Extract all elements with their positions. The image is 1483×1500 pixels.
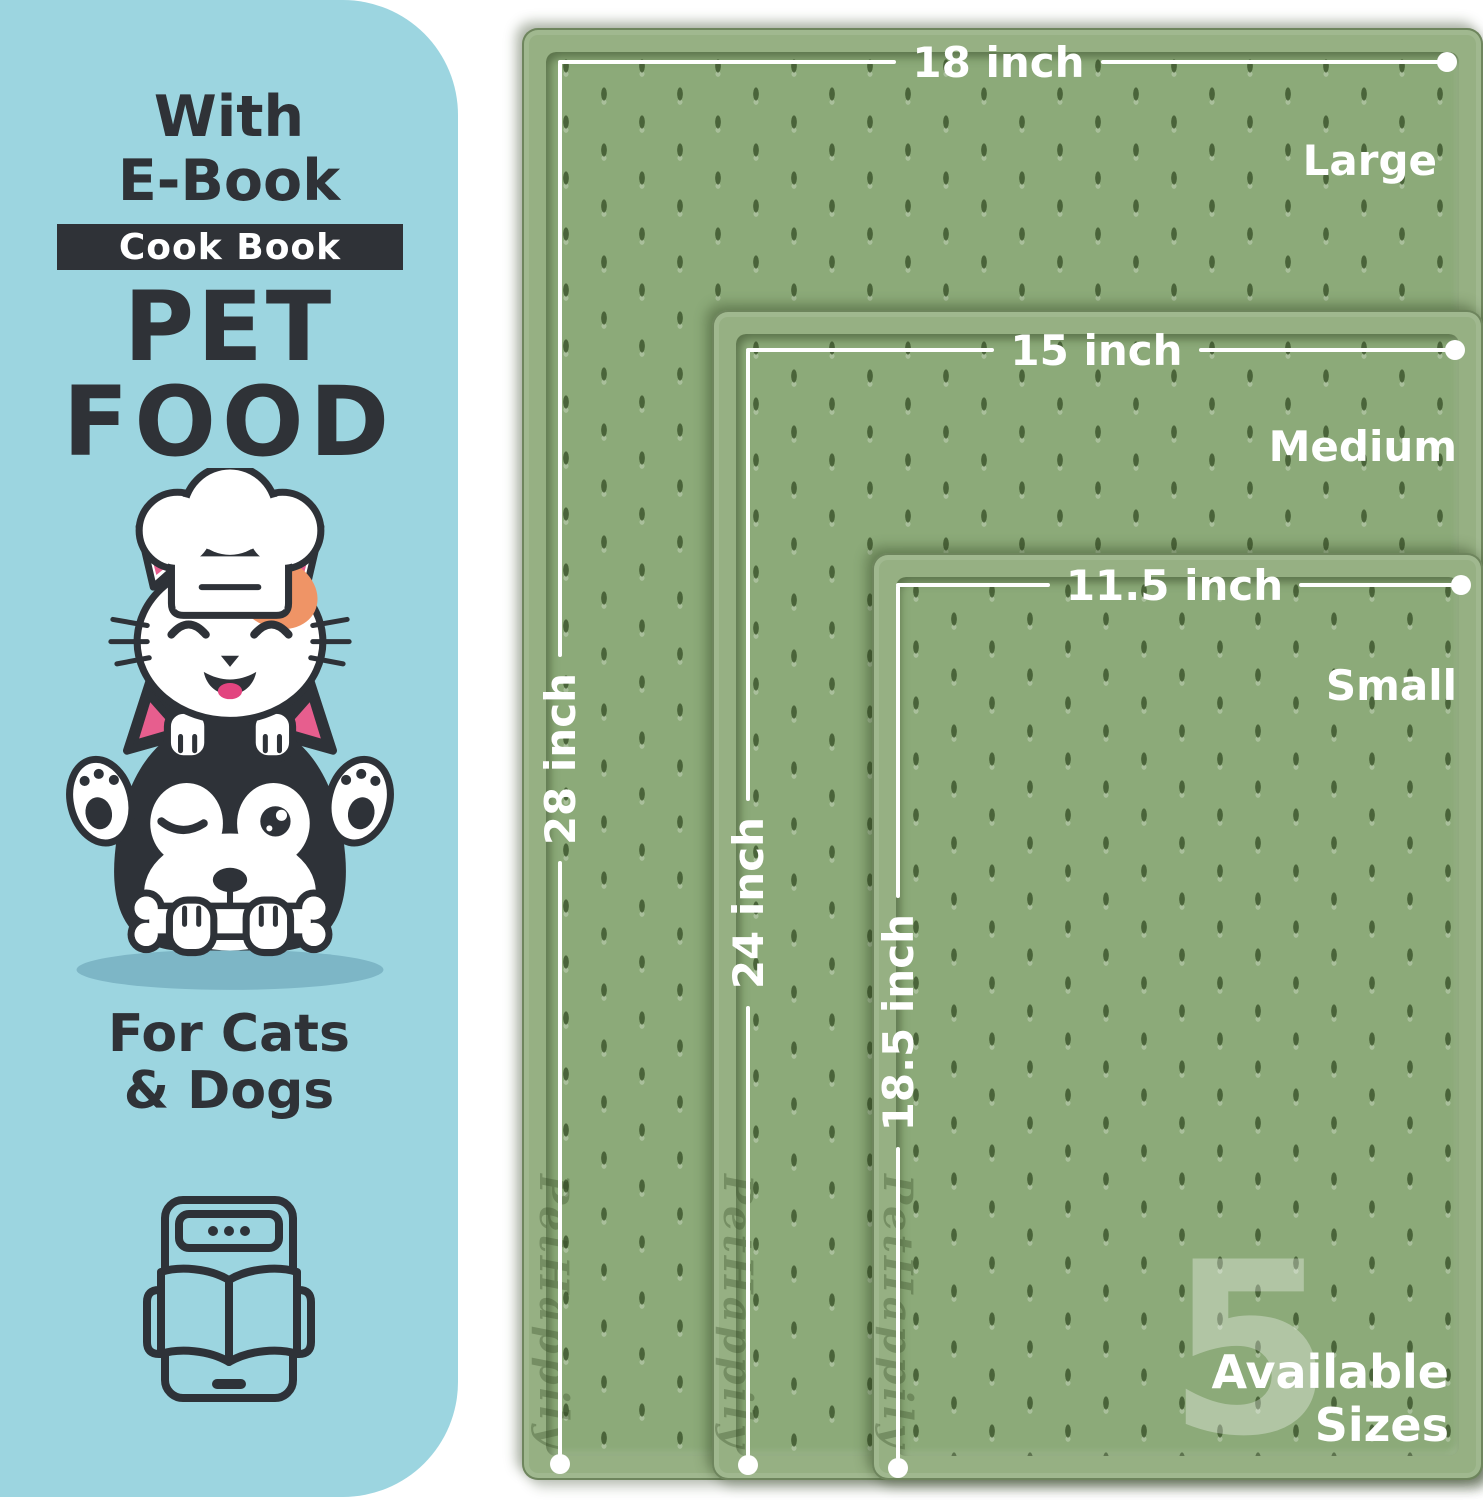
length-label-medium: 24 inch — [724, 817, 773, 989]
mat-small: PetHappily 11.5 inch 18.5 inch Small 5 A… — [872, 553, 1483, 1480]
title-line2: FOOD — [0, 375, 458, 470]
cookbook-badge: Cook Book — [57, 224, 403, 270]
length-label-large: 28 inch — [536, 673, 585, 845]
measure-line — [896, 583, 1050, 587]
cookbook-badge-label: Cook Book — [119, 227, 341, 268]
measure-line — [896, 585, 900, 898]
measure-line — [558, 861, 562, 1456]
measure-line — [746, 1006, 750, 1457]
measure-line — [746, 348, 994, 352]
ebook-heading-line1: With — [154, 84, 304, 150]
title-line1: PET — [0, 280, 458, 375]
width-measure-medium: 15 inch — [746, 340, 1465, 360]
ebook-heading-line2: E-Book — [118, 148, 340, 214]
width-measure-large: 18 inch — [558, 52, 1457, 72]
available-sizes-line1: Available — [1212, 1346, 1449, 1399]
length-measure-medium: 24 inch — [738, 350, 758, 1475]
measure-line — [558, 60, 896, 64]
measure-endpoint-dot — [1451, 575, 1471, 595]
audience-line1: For Cats — [108, 1004, 350, 1064]
cat-chef-illustration — [48, 468, 412, 998]
measure-line — [1299, 583, 1453, 587]
length-measure-large: 28 inch — [550, 62, 570, 1474]
available-sizes-badge: 5 Available Sizes — [1212, 1346, 1449, 1452]
available-sizes-line2: Sizes — [1212, 1399, 1449, 1452]
width-label-small: 11.5 inch — [1066, 561, 1283, 610]
measure-line — [896, 1147, 900, 1460]
width-label-medium: 15 inch — [1010, 326, 1182, 375]
measure-endpoint-dot — [888, 1458, 908, 1478]
measure-line — [746, 350, 750, 801]
width-measure-small: 11.5 inch — [896, 575, 1471, 595]
length-measure-small: 18.5 inch — [888, 585, 908, 1478]
measure-line — [1101, 60, 1439, 64]
size-label-large: Large — [1303, 136, 1437, 185]
measure-endpoint-dot — [738, 1455, 758, 1475]
measure-line — [1199, 348, 1447, 352]
ebook-icon — [139, 1193, 319, 1405]
length-label-small: 18.5 inch — [874, 914, 923, 1131]
measure-endpoint-dot — [1445, 340, 1465, 360]
ebook-heading: With E-Book — [0, 86, 458, 214]
size-label-small: Small — [1326, 661, 1457, 710]
audience-line2: & Dogs — [124, 1061, 335, 1121]
pet-food-title: PET FOOD — [0, 280, 458, 470]
measure-line — [558, 62, 562, 657]
size-label-medium: Medium — [1269, 422, 1457, 471]
audience-text: For Cats & Dogs — [0, 1006, 458, 1120]
measure-endpoint-dot — [1437, 52, 1457, 72]
product-infographic: With E-Book Cook Book PET FOOD — [0, 0, 1483, 1500]
measure-endpoint-dot — [550, 1454, 570, 1474]
left-panel: With E-Book Cook Book PET FOOD — [0, 0, 458, 1497]
ground-shadow — [77, 950, 384, 990]
width-label-large: 18 inch — [912, 38, 1084, 87]
